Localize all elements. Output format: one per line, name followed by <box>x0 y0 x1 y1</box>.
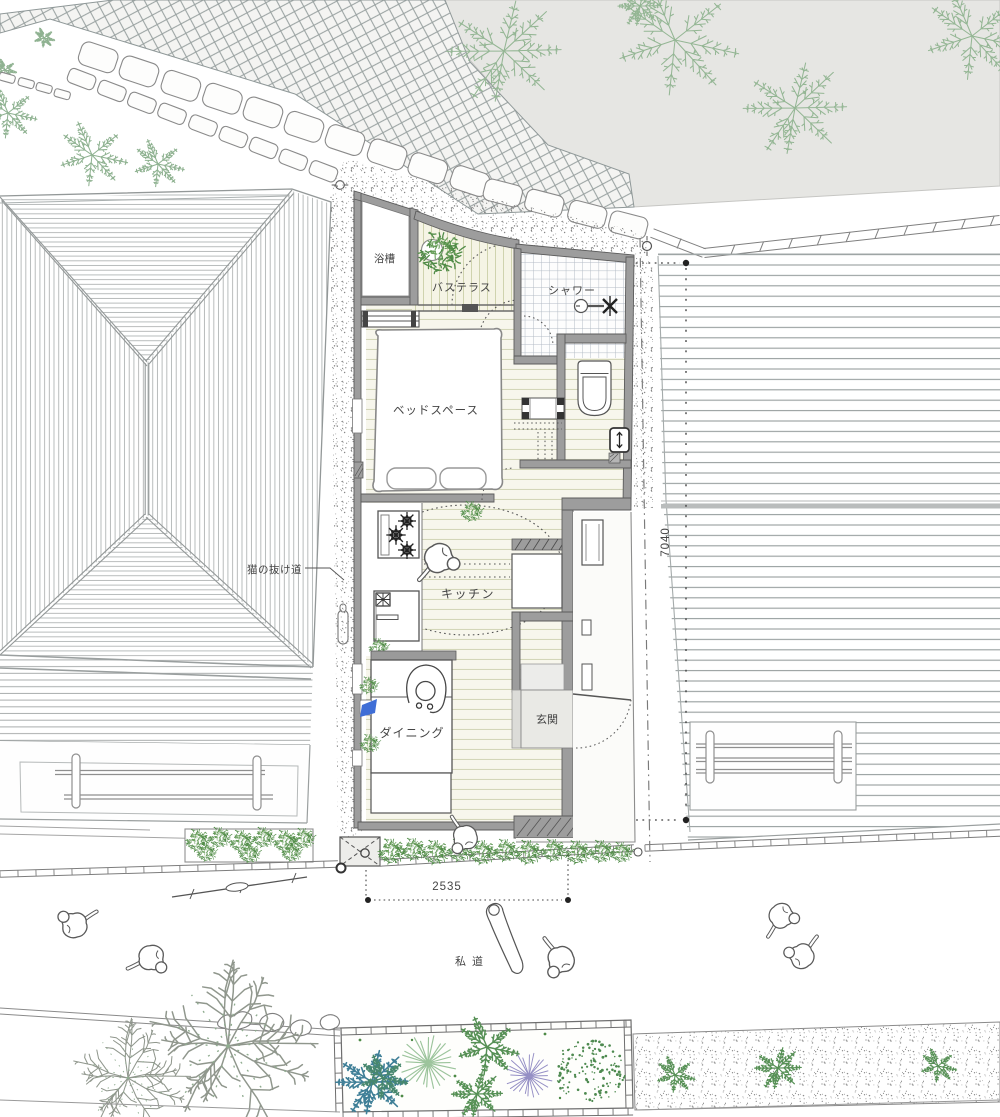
svg-text:私道: 私道 <box>455 954 489 968</box>
svg-text:浴槽: 浴槽 <box>374 253 395 265</box>
svg-text:シャワー: シャワー <box>548 285 596 297</box>
svg-text:玄関: 玄関 <box>536 712 558 726</box>
svg-text:猫の抜け道: 猫の抜け道 <box>247 563 302 576</box>
svg-text:2535: 2535 <box>432 881 462 893</box>
svg-text:ダイニング: ダイニング <box>379 725 444 740</box>
svg-text:ベッドスペース: ベッドスペース <box>393 405 479 417</box>
svg-text:7040: 7040 <box>660 527 672 557</box>
svg-text:キッチン: キッチン <box>441 587 495 601</box>
svg-text:バステラス: バステラス <box>432 281 492 294</box>
